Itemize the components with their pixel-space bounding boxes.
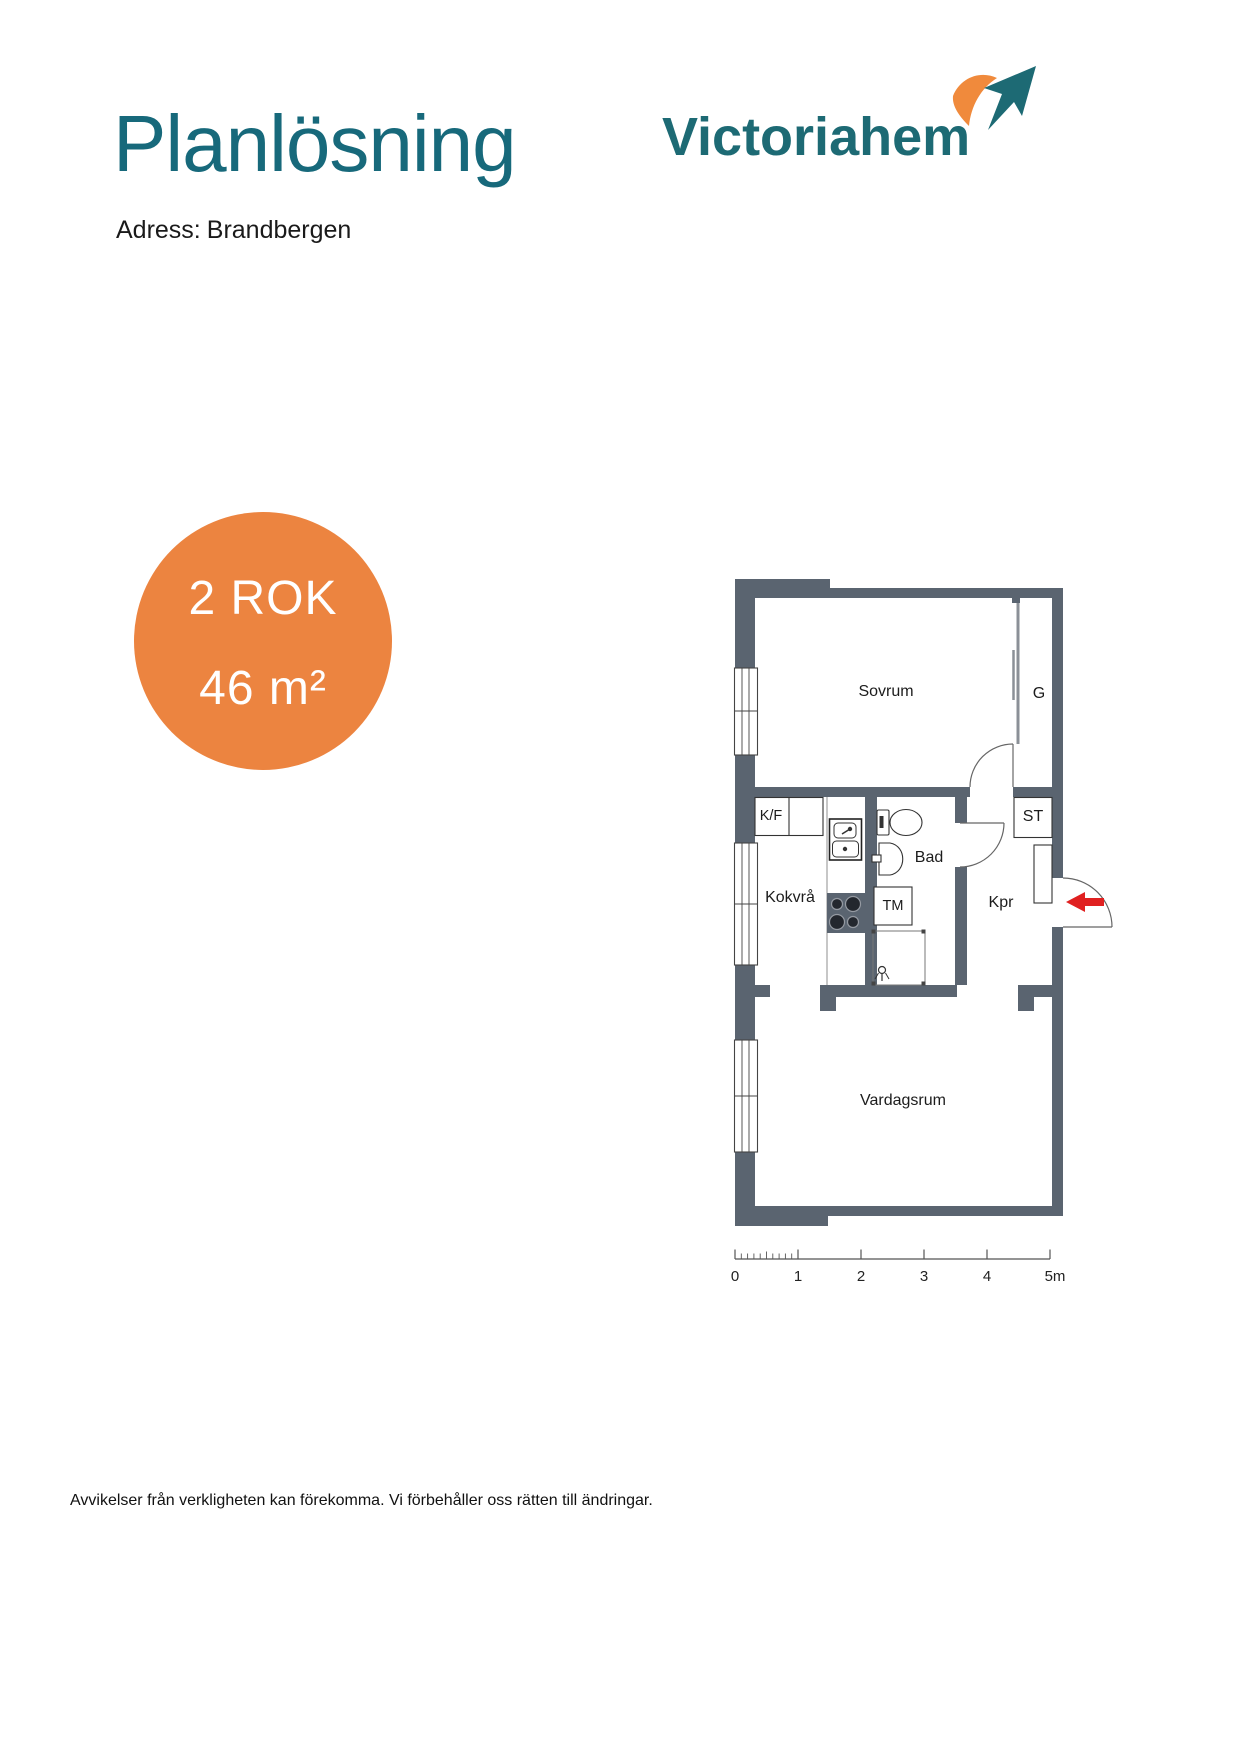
- room-label-kokvra: Kokvrå: [765, 889, 815, 907]
- room-label-tm: TM: [883, 898, 904, 914]
- entrance-arrow-icon: [1066, 892, 1104, 912]
- scale-label-2: 2: [857, 1268, 865, 1285]
- bedroom-door-icon: [970, 744, 1013, 787]
- room-label-st: ST: [1023, 808, 1043, 826]
- scale-label-3: 3: [920, 1268, 928, 1285]
- toilet-icon: [877, 810, 922, 836]
- window-icon: [735, 843, 758, 965]
- floor-plan: [0, 0, 1240, 1754]
- kitchen-sink-icon: [830, 819, 862, 860]
- room-label-vardagsrum: Vardagsrum: [860, 1092, 946, 1110]
- window-icon: [735, 668, 758, 755]
- hall-wardrobe-box: [1034, 845, 1052, 903]
- window-icon: [735, 1040, 758, 1152]
- stove-icon: [827, 893, 865, 933]
- room-label-bad: Bad: [915, 849, 943, 867]
- scale-label-0: 0: [731, 1268, 739, 1285]
- bathroom-door-icon: [960, 823, 1004, 867]
- scale-label-4: 4: [983, 1268, 991, 1285]
- floor-plan-page: Planlösning Adress:Brandbergen Victoriah…: [0, 0, 1240, 1754]
- wardrobe-divider: [1014, 603, 1019, 744]
- scale-bar: [735, 1250, 1050, 1260]
- scale-label-1: 1: [794, 1268, 802, 1285]
- room-label-kf: K/F: [760, 808, 783, 824]
- footer-disclaimer: Avvikelser från verkligheten kan förekom…: [70, 1492, 653, 1510]
- shower-icon: [872, 930, 926, 986]
- scale-label-5m: 5m: [1045, 1268, 1066, 1285]
- room-label-g: G: [1033, 685, 1045, 703]
- room-label-kpr: Kpr: [989, 894, 1014, 912]
- room-label-sovrum: Sovrum: [858, 683, 913, 701]
